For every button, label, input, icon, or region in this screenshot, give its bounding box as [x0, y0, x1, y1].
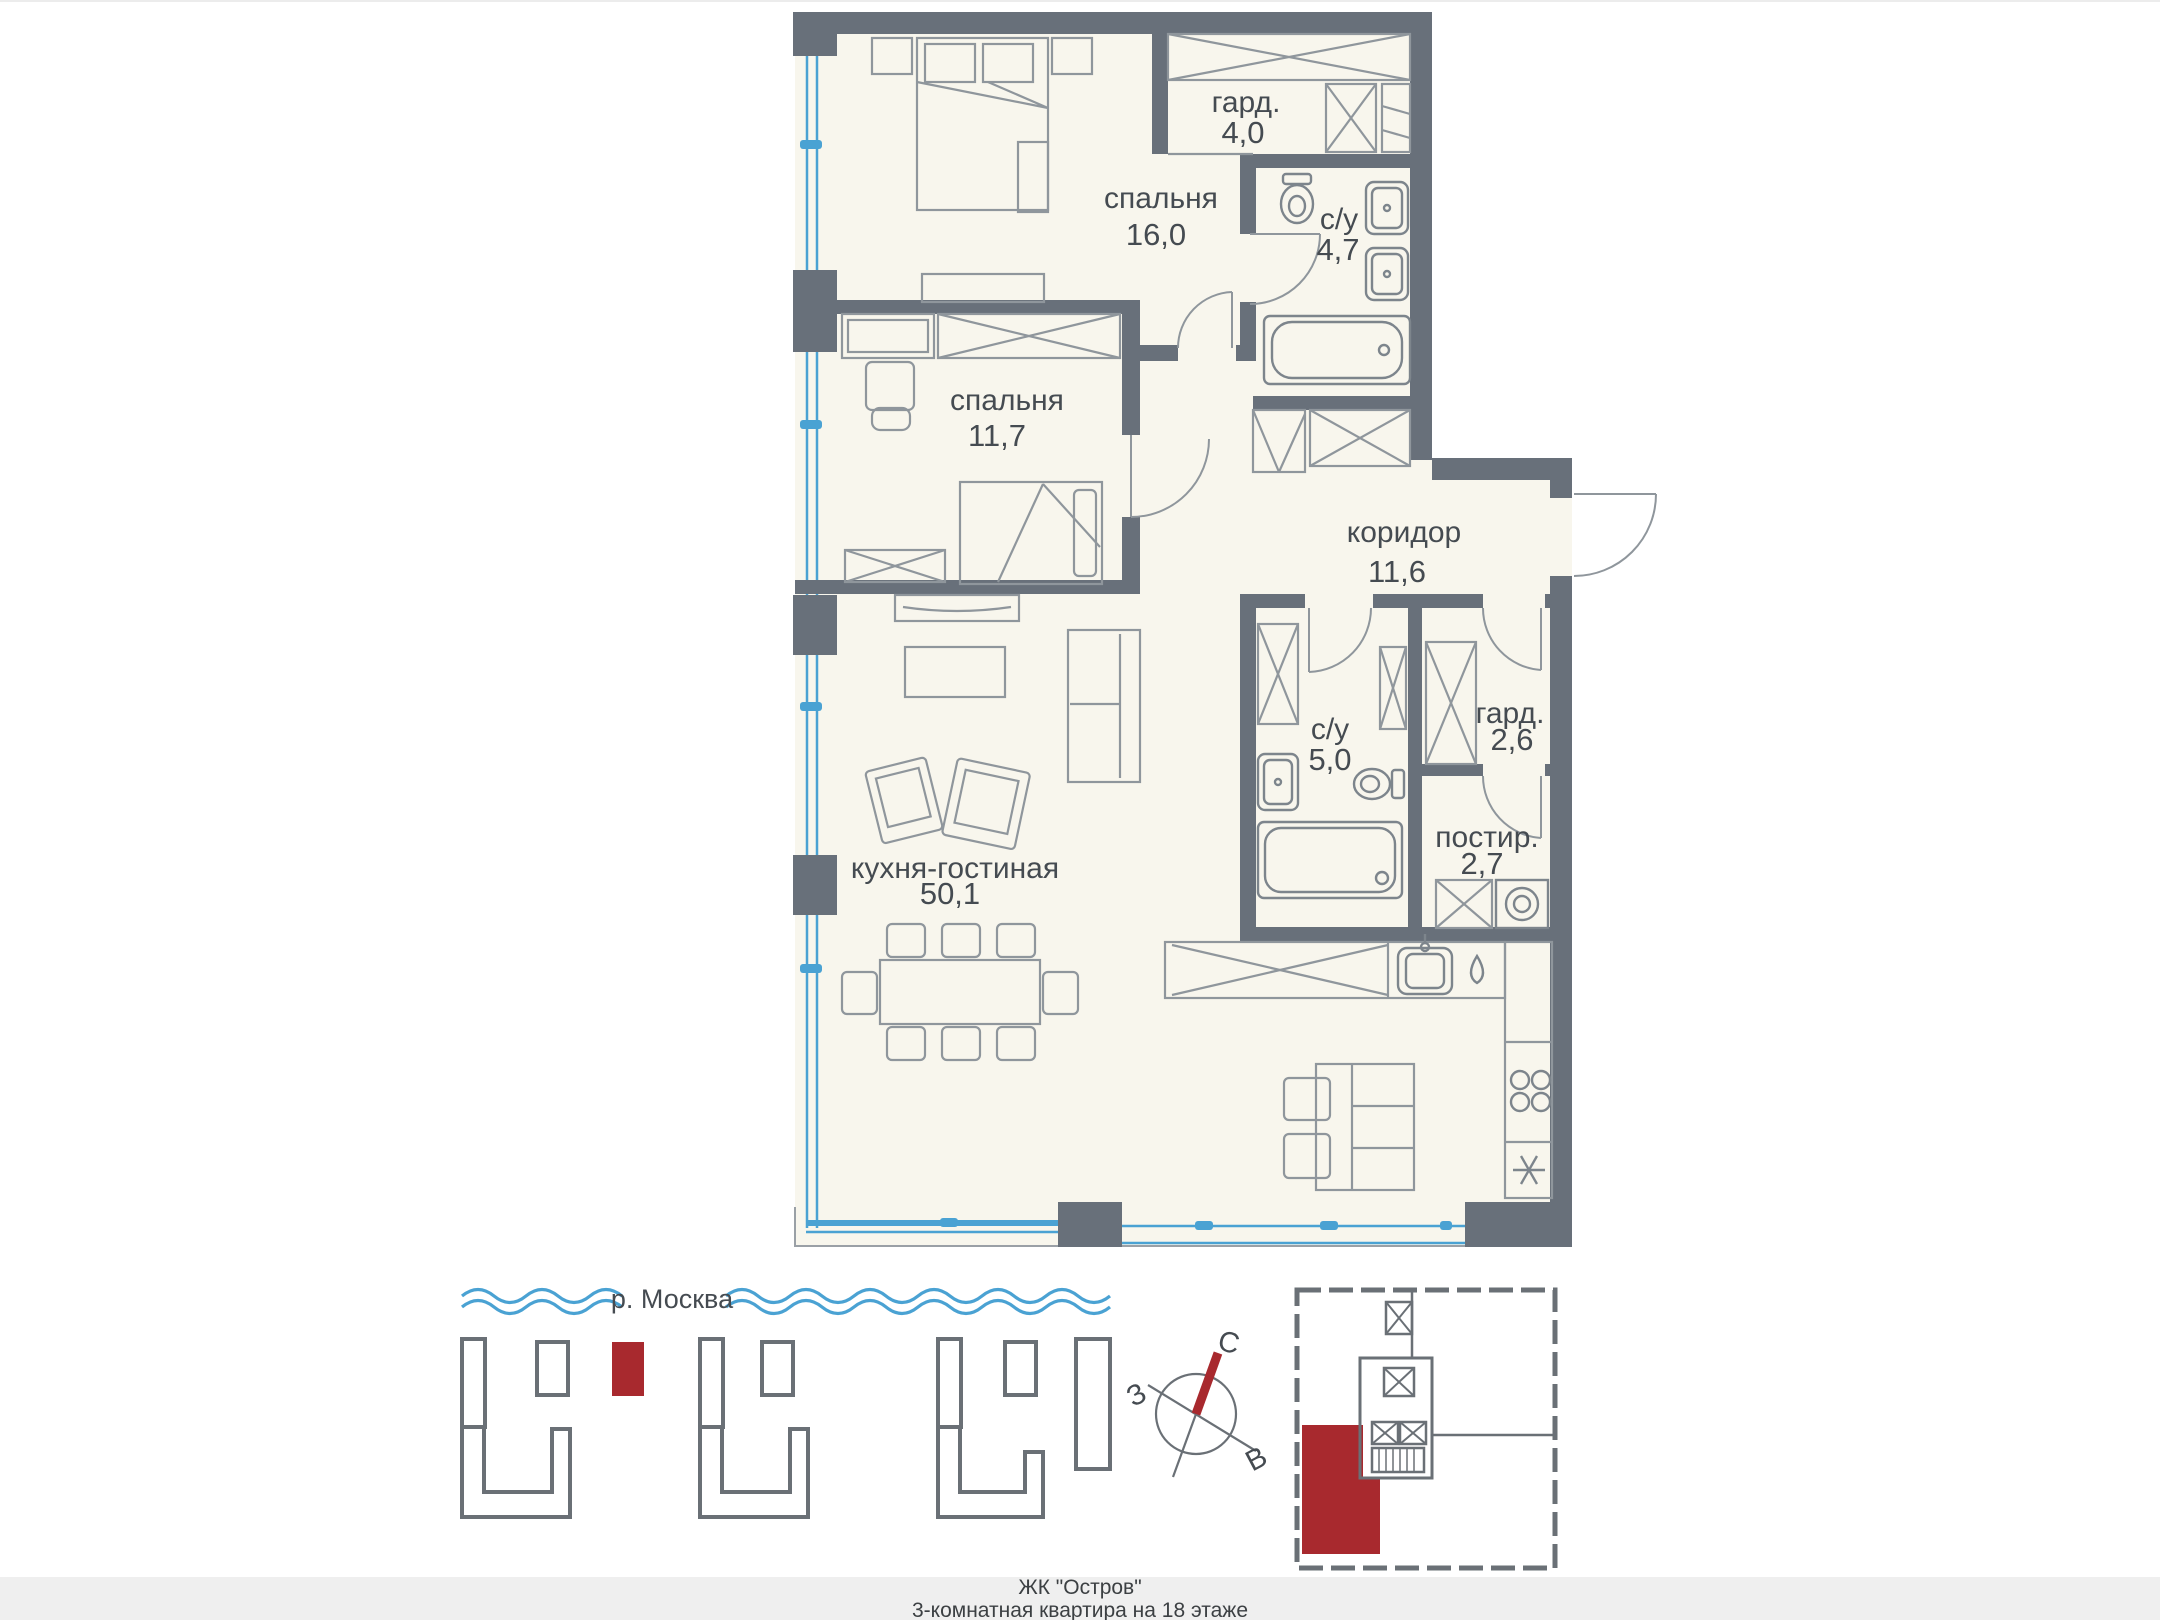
room-label-bathroom-2-area: 5,0: [1308, 742, 1351, 777]
room-label-wardrobe-1-area: 4,0: [1221, 115, 1264, 150]
room-label-bathroom-1-area: 4,7: [1316, 232, 1359, 267]
building-key-plan: [1297, 1290, 1555, 1568]
room-label-kitchen-living-area: 50,1: [920, 876, 980, 911]
compass-east-label: В: [1241, 1441, 1273, 1478]
river-waves-icon: [462, 1290, 1110, 1314]
footer: ЖК "Остров" 3-комнатная квартира на 18 э…: [0, 1577, 2160, 1620]
site-buildings: [462, 1339, 1110, 1517]
highlighted-building: [612, 1342, 644, 1396]
stairs-icon: [1372, 1448, 1424, 1472]
room-label-bedroom-1-area: 16,0: [1126, 217, 1186, 252]
floor-plan-canvas: спальня 16,0 гард. 4,0 с/у 4,7 спальня 1…: [0, 2, 2160, 1620]
compass-needle-north: [1196, 1353, 1218, 1414]
entrance-door: [1574, 494, 1656, 576]
apartment-subtitle: 3-комнатная квартира на 18 этаже: [912, 1600, 1248, 1620]
river-label: р. Москва: [611, 1284, 734, 1314]
project-title: ЖК "Остров": [1018, 1577, 1141, 1599]
room-label-bedroom-2-name: спальня: [950, 384, 1064, 417]
elevator-core: [1360, 1302, 1432, 1478]
floorplan-page: спальня 16,0 гард. 4,0 с/у 4,7 спальня 1…: [0, 0, 2160, 1620]
compass-west-label: З: [1121, 1377, 1152, 1413]
site-plan: р. Москва: [462, 1284, 1110, 1517]
room-label-corridor-name: коридор: [1347, 516, 1461, 549]
compass-rose-icon: С З В: [1121, 1325, 1272, 1478]
room-label-bedroom-1-name: спальня: [1104, 182, 1218, 215]
room-label-bedroom-2-area: 11,7: [968, 418, 1026, 453]
compass-north-label: С: [1215, 1325, 1243, 1361]
room-label-corridor-area: 11,6: [1368, 554, 1426, 589]
room-label-wardrobe-2-area: 2,6: [1490, 722, 1533, 757]
highlighted-apartment: [1302, 1425, 1380, 1554]
room-label-laundry-area: 2,7: [1460, 846, 1503, 881]
